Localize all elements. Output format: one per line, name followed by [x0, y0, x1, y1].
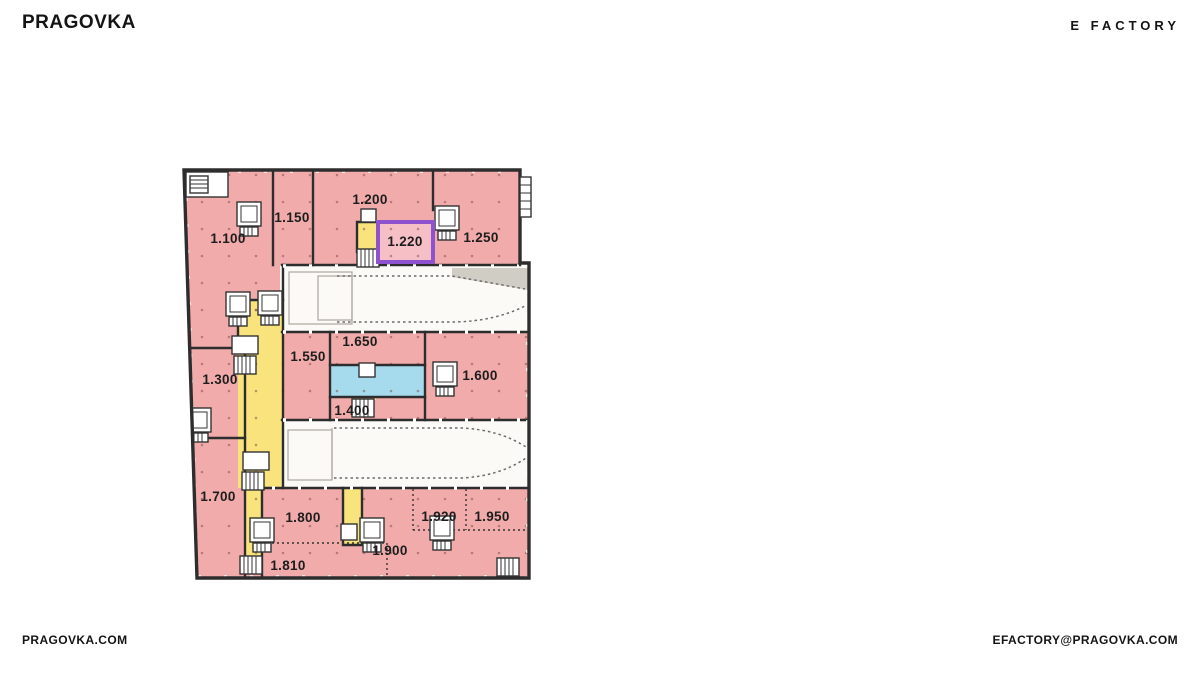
- room-label[interactable]: 1.250: [463, 230, 498, 245]
- room-label[interactable]: 1.100: [210, 231, 245, 246]
- elevator-icon: [435, 206, 459, 240]
- elevator-icon: [243, 452, 269, 470]
- room-label[interactable]: 1.800: [285, 510, 320, 525]
- room-label[interactable]: 1.650: [342, 334, 377, 349]
- elevator-icon: [433, 362, 457, 396]
- stairs-icon: [357, 249, 379, 267]
- room-label[interactable]: 1.400: [334, 403, 369, 418]
- stairs-icon: [186, 172, 228, 197]
- room-label[interactable]: 1.200: [352, 192, 387, 207]
- elevator-icon: [359, 363, 375, 377]
- room-label[interactable]: 1.920: [421, 509, 456, 524]
- room-label[interactable]: 1.550: [290, 349, 325, 364]
- room-label[interactable]: 1.700: [200, 489, 235, 504]
- room-label[interactable]: 1.950: [474, 509, 509, 524]
- elevator-icon: [361, 209, 376, 222]
- website-link[interactable]: PRAGOVKA.COM: [22, 633, 127, 647]
- ladder-icon: [520, 177, 531, 217]
- elevator-icon: [232, 336, 258, 354]
- room-label[interactable]: 1.300: [202, 372, 237, 387]
- room-label[interactable]: 1.220: [387, 234, 422, 249]
- stairs-icon: [240, 556, 262, 574]
- elevator-icon: [226, 292, 250, 326]
- email-link[interactable]: EFACTORY@PRAGOVKA.COM: [993, 633, 1178, 647]
- elevator-icon: [341, 524, 357, 540]
- stairs-icon: [497, 558, 519, 576]
- room-label[interactable]: 1.150: [274, 210, 309, 225]
- elevator-icon: [250, 518, 274, 552]
- room-label[interactable]: 1.900: [372, 543, 407, 558]
- room-label[interactable]: 1.810: [270, 558, 305, 573]
- dot-grid: [184, 170, 520, 265]
- elevator-icon: [258, 291, 282, 325]
- page: PRAGOVKA E FACTORY: [0, 0, 1200, 675]
- room-label[interactable]: 1.600: [462, 368, 497, 383]
- stairs-icon: [242, 472, 264, 490]
- floorplan: 1.100 1.150 1.200 1.220 1.250 1.300 1.40…: [0, 0, 1200, 675]
